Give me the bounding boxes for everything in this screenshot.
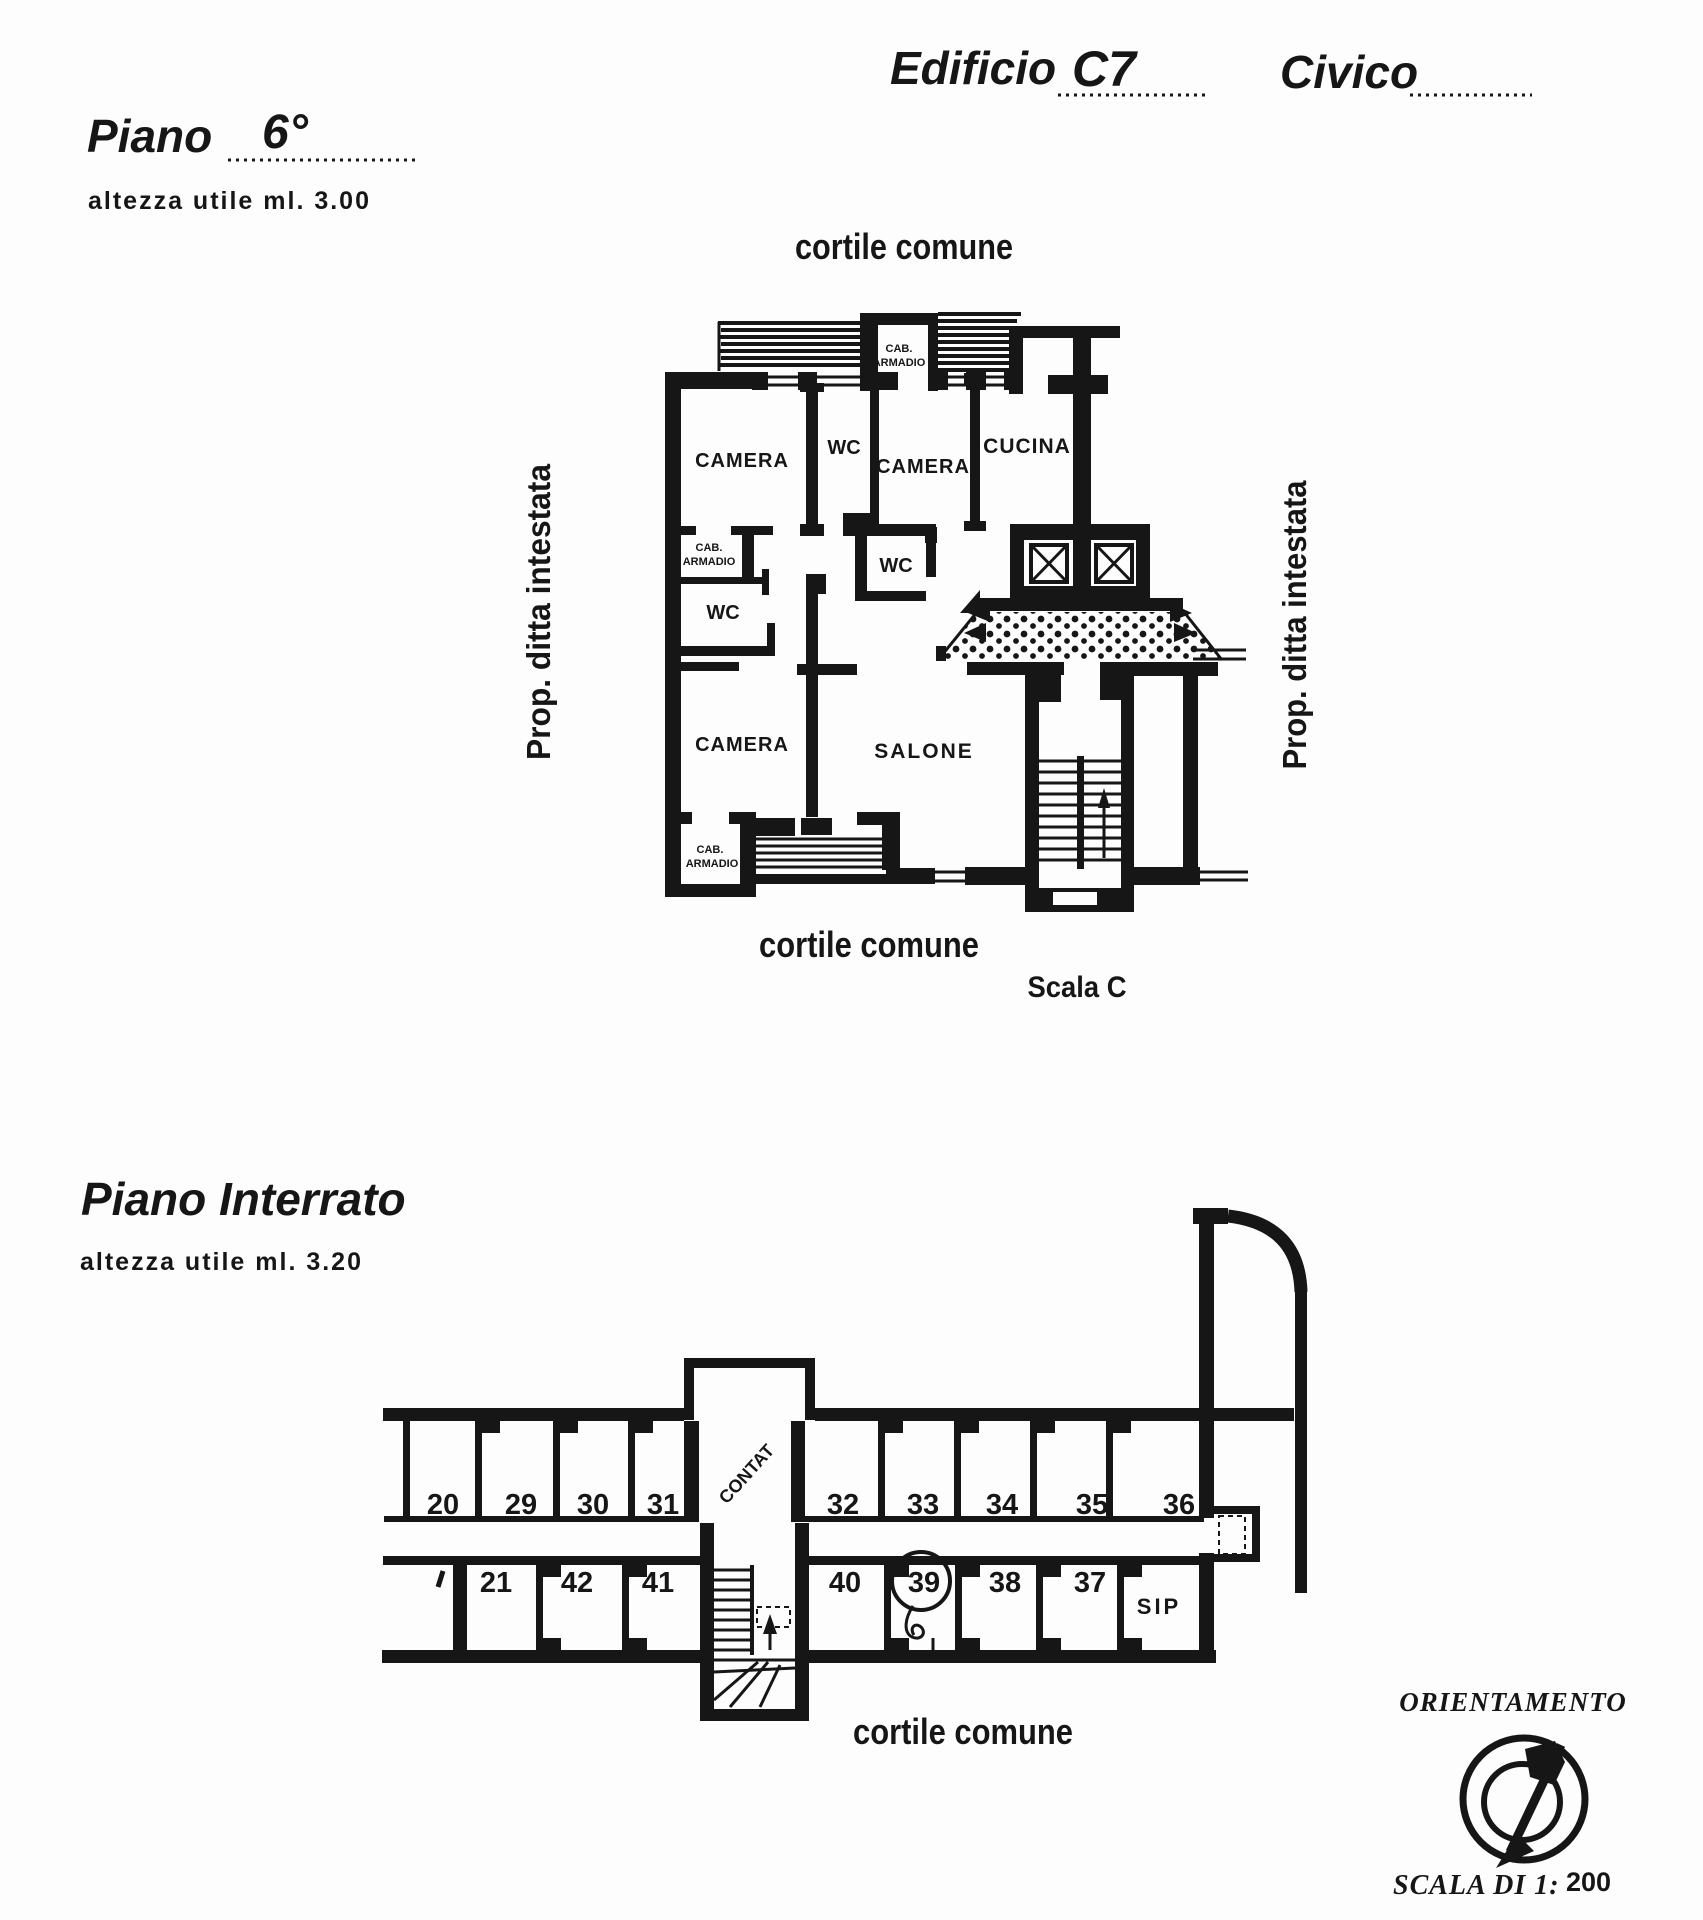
svg-text:6°: 6°	[262, 106, 309, 159]
svg-text:37: 37	[1074, 1567, 1106, 1599]
svg-text:CUCINA: CUCINA	[983, 435, 1071, 458]
svg-text:altezza utile ml. 3.00: altezza utile ml. 3.00	[88, 187, 371, 215]
svg-text:36: 36	[1163, 1489, 1195, 1521]
svg-text:ARMADIO: ARMADIO	[873, 357, 926, 369]
svg-text:ORIENTAMENTO: ORIENTAMENTO	[1399, 1687, 1627, 1717]
svg-text:C7: C7	[1072, 41, 1138, 97]
svg-text:38: 38	[989, 1567, 1021, 1599]
svg-text:31: 31	[647, 1489, 679, 1521]
svg-text:CAMERA: CAMERA	[695, 450, 789, 472]
svg-text:32: 32	[827, 1489, 859, 1521]
svg-text:CAB.: CAB.	[697, 844, 724, 856]
svg-text:CAB.: CAB.	[886, 343, 913, 355]
svg-text:ARMADIO: ARMADIO	[683, 556, 736, 568]
svg-text:21: 21	[480, 1567, 512, 1599]
svg-text:altezza utile ml. 3.20: altezza utile ml. 3.20	[80, 1248, 363, 1276]
svg-text:Edificio: Edificio	[890, 42, 1056, 94]
svg-text:Scala C: Scala C	[1028, 971, 1127, 1004]
svg-text:20: 20	[427, 1489, 459, 1521]
svg-text:35: 35	[1076, 1489, 1108, 1521]
svg-text:200: 200	[1566, 1867, 1611, 1897]
svg-text:34: 34	[986, 1489, 1018, 1521]
svg-text:cortile comune: cortile comune	[795, 226, 1013, 267]
svg-text:39: 39	[908, 1567, 940, 1599]
svg-text:Prop. ditta intestata: Prop. ditta intestata	[520, 463, 557, 760]
svg-text:29: 29	[505, 1489, 537, 1521]
svg-text:WC: WC	[827, 437, 860, 459]
svg-text:Prop. ditta intestata: Prop. ditta intestata	[1276, 480, 1313, 770]
svg-text:cortile comune: cortile comune	[759, 924, 979, 965]
svg-text:SIP: SIP	[1137, 1594, 1181, 1619]
svg-text:SALONE: SALONE	[874, 740, 974, 763]
svg-text:SCALA DI 1:: SCALA DI 1:	[1393, 1870, 1560, 1901]
svg-text:41: 41	[642, 1567, 674, 1599]
svg-text:CAMERA: CAMERA	[695, 734, 789, 756]
svg-text:cortile comune: cortile comune	[853, 1711, 1073, 1752]
svg-text:30: 30	[577, 1489, 609, 1521]
svg-text:CAB.: CAB.	[696, 542, 723, 554]
svg-text:Civico: Civico	[1280, 46, 1418, 98]
svg-text:33: 33	[907, 1489, 939, 1521]
svg-text:WC: WC	[879, 555, 912, 577]
svg-text:40: 40	[829, 1567, 861, 1599]
svg-text:WC: WC	[706, 602, 739, 624]
svg-text:Piano: Piano	[87, 110, 212, 162]
svg-text:42: 42	[561, 1567, 593, 1599]
svg-text:ARMADIO: ARMADIO	[686, 858, 739, 870]
svg-text:CAMERA: CAMERA	[876, 456, 970, 478]
svg-text:Piano Interrato: Piano Interrato	[81, 1173, 406, 1225]
